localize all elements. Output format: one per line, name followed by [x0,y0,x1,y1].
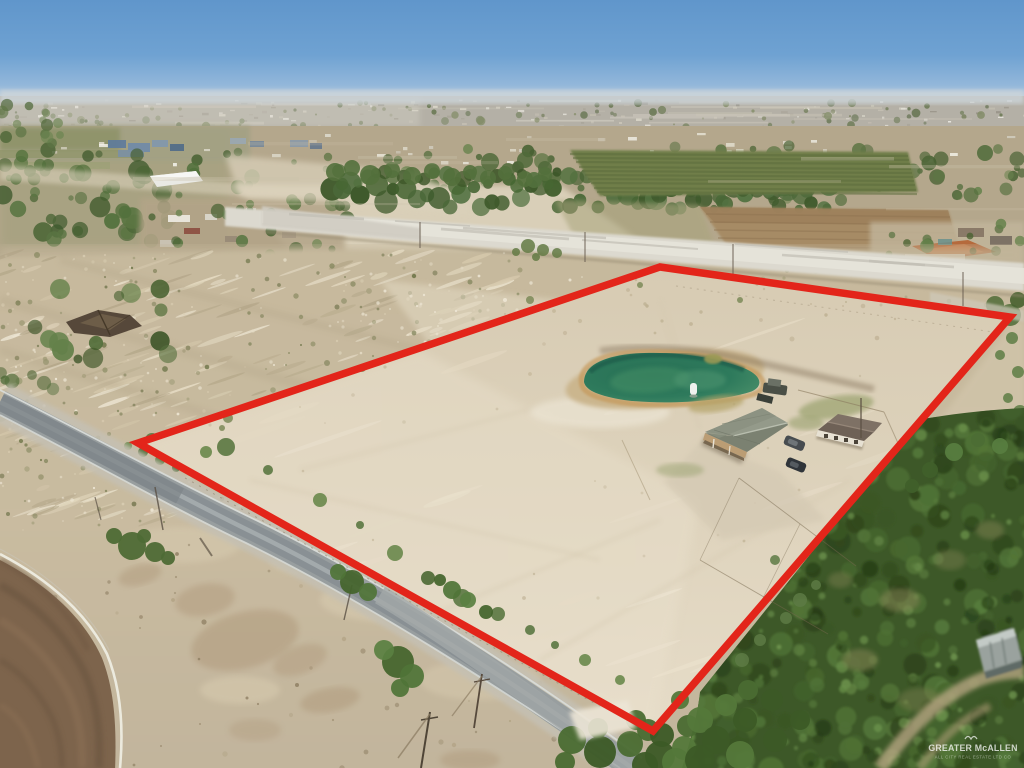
svg-text:GREATER McALLEN: GREATER McALLEN [928,743,1017,753]
svg-text:ALL CITY REAL ESTATE LTD CO: ALL CITY REAL ESTATE LTD CO [935,755,1012,760]
